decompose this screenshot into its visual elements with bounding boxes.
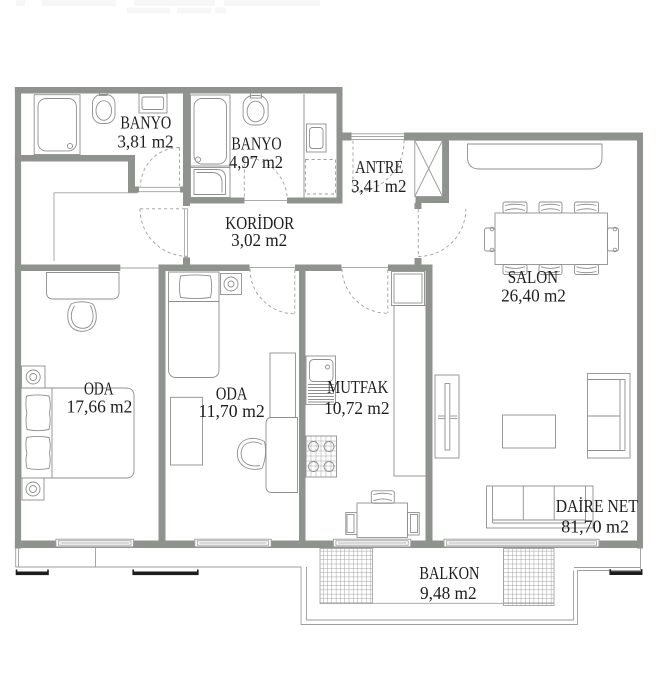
- svg-text:9,48 m2: 9,48 m2: [420, 583, 477, 603]
- svg-text:ANTRE: ANTRE: [355, 157, 403, 177]
- svg-text:10,72 m2: 10,72 m2: [324, 398, 389, 418]
- svg-text:MUTFAK: MUTFAK: [327, 377, 388, 397]
- svg-text:17,66 m2: 17,66 m2: [67, 396, 133, 416]
- svg-text:26,40 m2: 26,40 m2: [501, 286, 566, 306]
- svg-text:3,02 m2: 3,02 m2: [231, 230, 287, 250]
- svg-text:DAİRE NET: DAİRE NET: [556, 496, 638, 516]
- svg-text:3,41 m2: 3,41 m2: [351, 176, 406, 196]
- svg-text:3,81 m2: 3,81 m2: [117, 131, 173, 151]
- svg-text:BANYO: BANYO: [120, 112, 171, 132]
- svg-text:BANYO: BANYO: [231, 133, 281, 153]
- svg-text:SALON: SALON: [508, 267, 559, 287]
- svg-text:11,70 m2: 11,70 m2: [198, 401, 264, 421]
- svg-text:BALKON: BALKON: [419, 563, 479, 583]
- svg-text:4,97 m2: 4,97 m2: [229, 152, 283, 172]
- svg-text:ODA: ODA: [84, 378, 114, 398]
- svg-text:81,70 m2: 81,70 m2: [561, 517, 629, 537]
